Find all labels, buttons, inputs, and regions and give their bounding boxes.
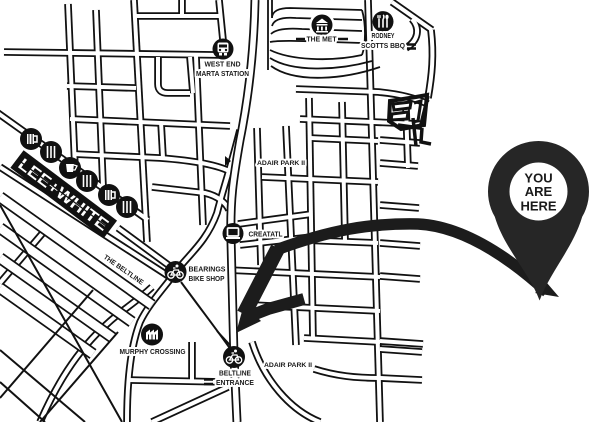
svg-text:MARTA STATION: MARTA STATION [196,69,249,78]
svg-text:ADAIR PARK II: ADAIR PARK II [264,362,312,369]
svg-text:MURPHY CROSSING: MURPHY CROSSING [120,347,186,356]
svg-text:WEST END: WEST END [205,60,241,69]
svg-text:ENTRANCE: ENTRANCE [216,378,254,387]
svg-text:BIKE SHOP: BIKE SHOP [189,274,225,283]
svg-text:RODNEY: RODNEY [372,31,395,40]
svg-text:THE MET: THE MET [307,35,338,44]
svg-text:BELTLINE: BELTLINE [219,369,251,378]
svg-text:BEARINGS: BEARINGS [189,265,226,274]
svg-text:ARE: ARE [525,184,553,199]
svg-text:SCOTTS BBQ: SCOTTS BBQ [361,41,405,50]
svg-text:ADAIR PARK II: ADAIR PARK II [257,160,305,167]
svg-text:CREATATL: CREATATL [249,230,284,239]
svg-text:HERE: HERE [520,199,556,214]
